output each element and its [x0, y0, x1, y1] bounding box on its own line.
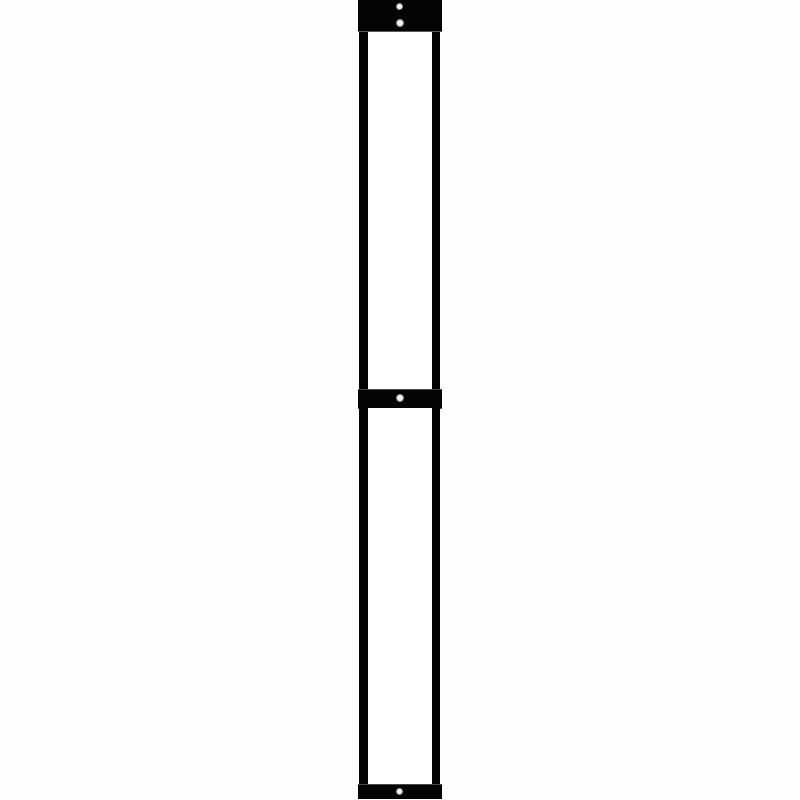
rail-right-lower: [432, 408, 440, 784]
panel-lower: [368, 408, 432, 784]
rail-left-upper: [359, 32, 368, 389]
rail-right-upper: [432, 32, 440, 389]
white-background: [0, 0, 800, 800]
screw-icon: [396, 3, 403, 10]
screw-icon: [396, 19, 404, 27]
panel-upper: [368, 32, 432, 389]
screw-icon: [396, 394, 404, 402]
rail-left-lower: [359, 408, 368, 784]
screw-icon: [396, 788, 403, 795]
